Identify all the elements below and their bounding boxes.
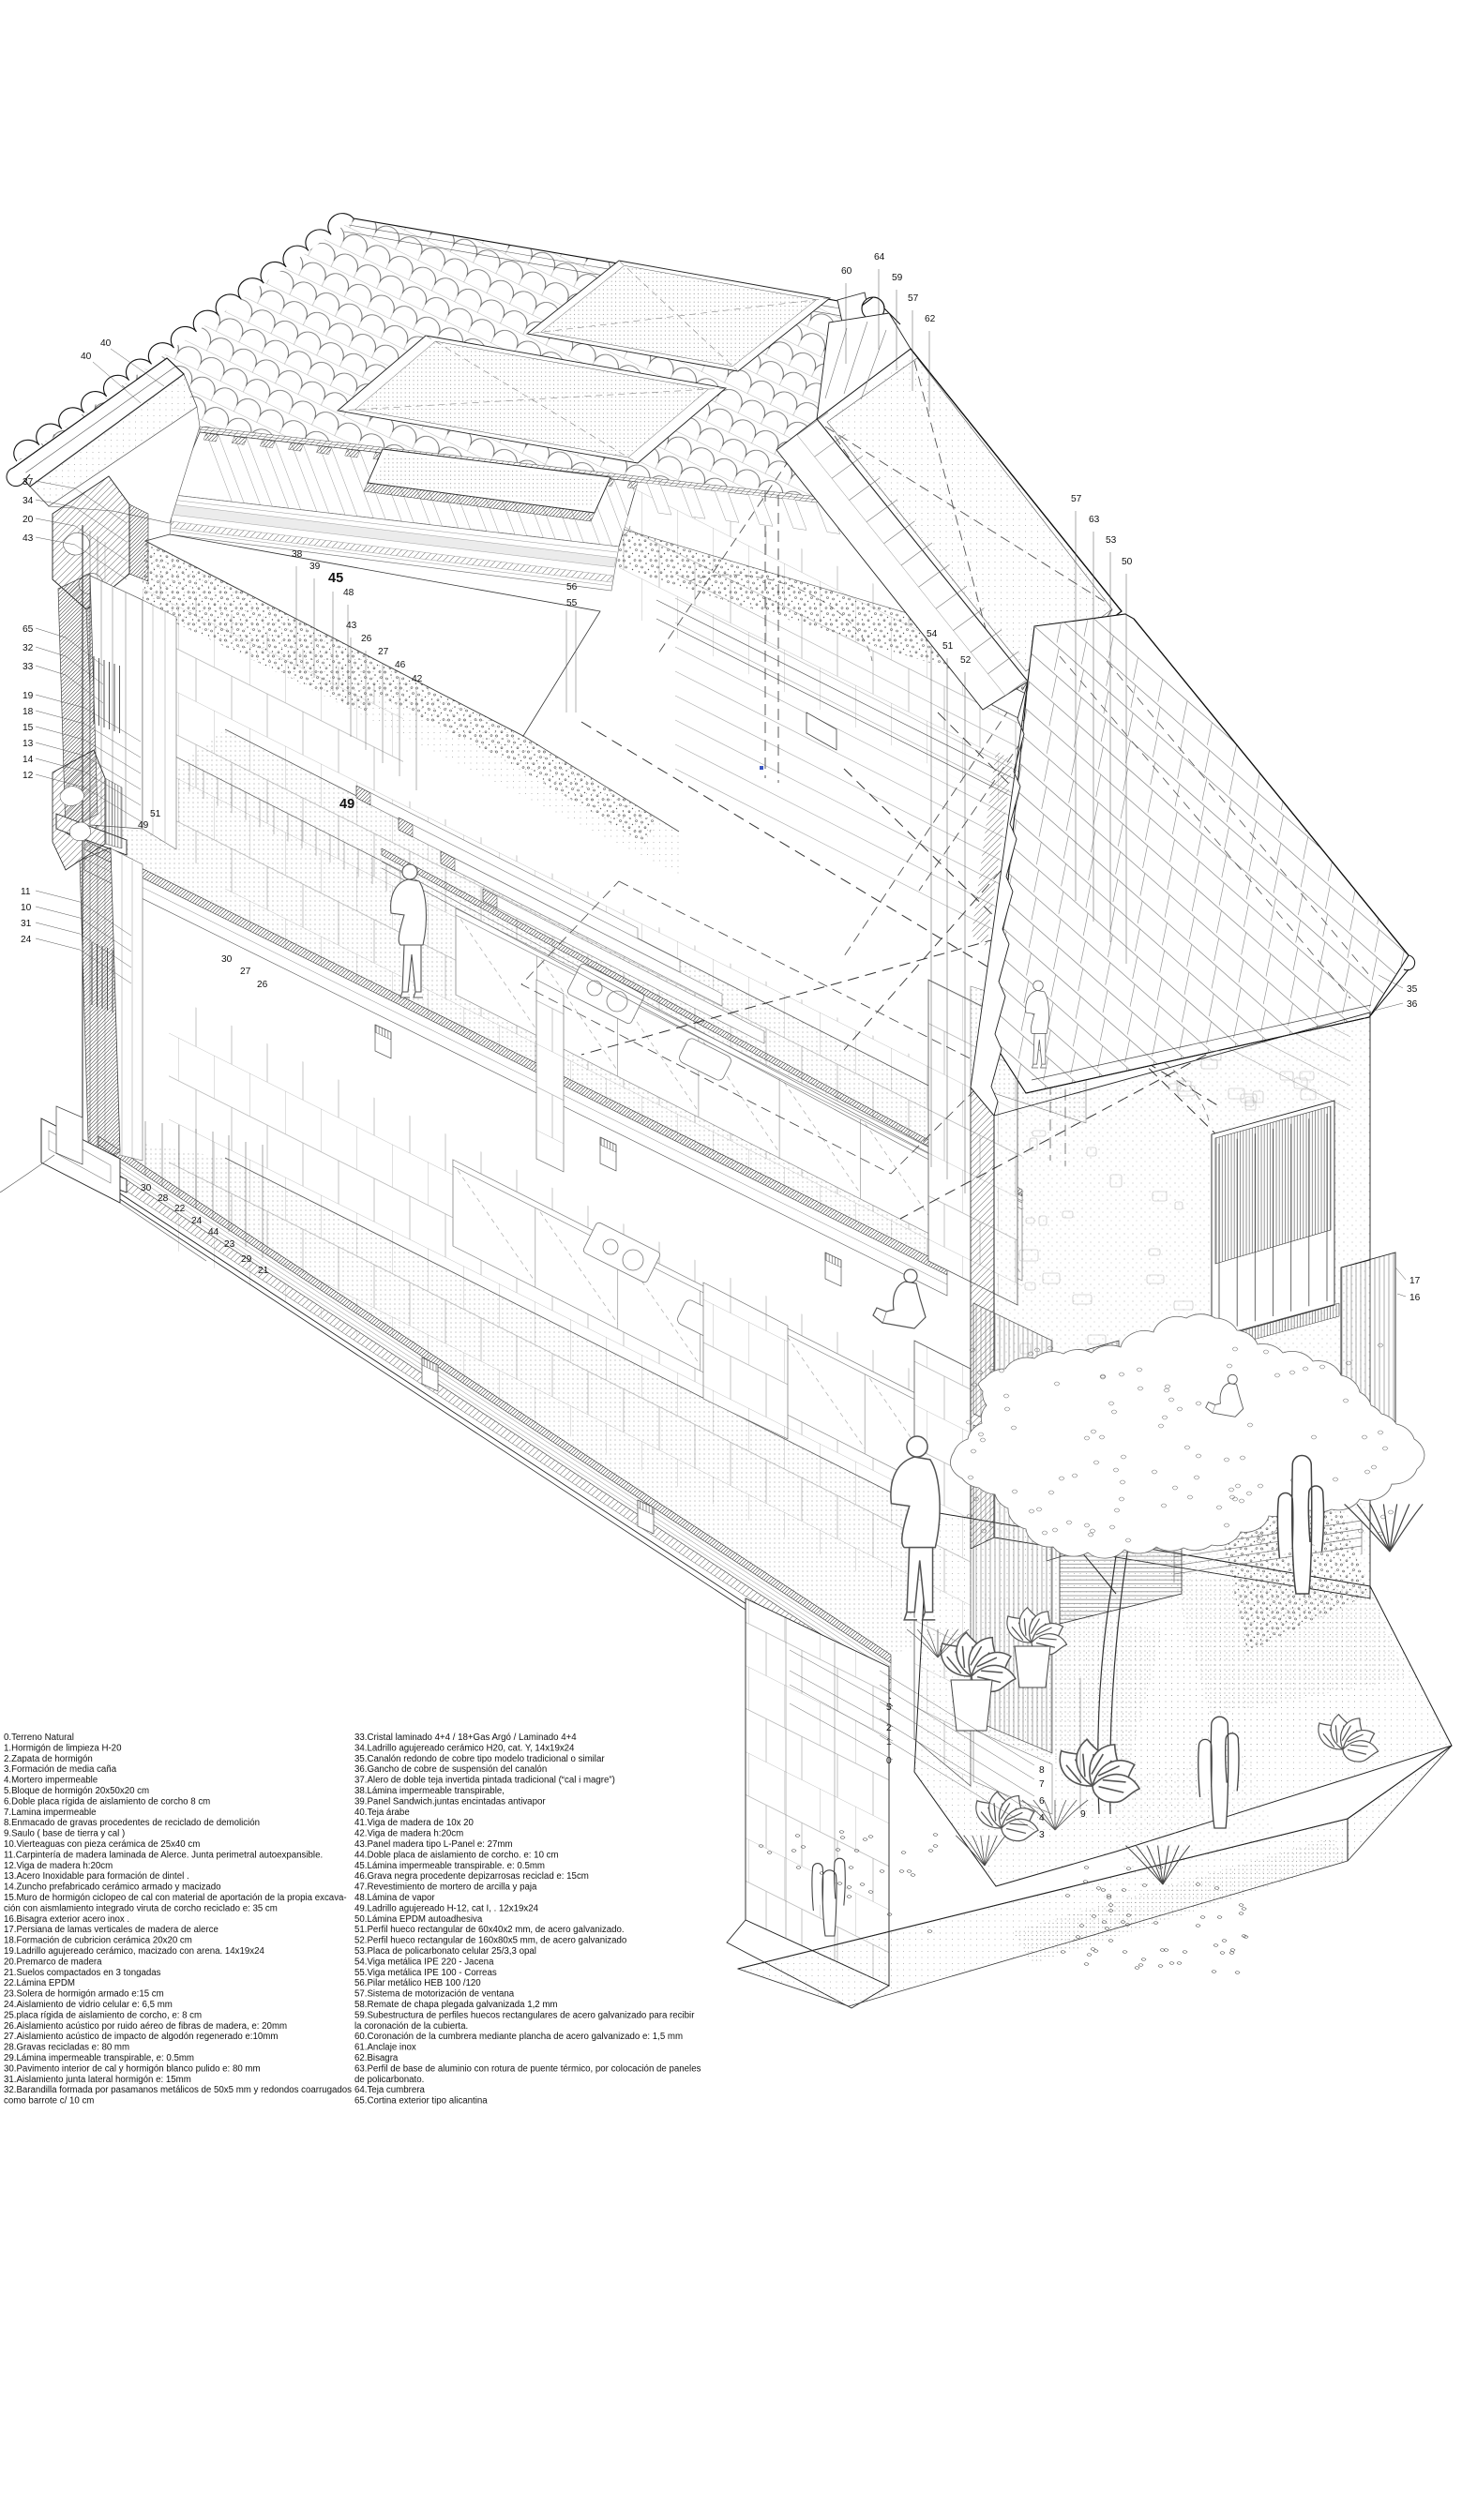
- svg-text:21.Suelos compactados en 3 ton: 21.Suelos compactados en 3 tongadas: [4, 1968, 161, 1978]
- svg-text:19.Ladrillo agujereado cerámic: 19.Ladrillo agujereado cerámico, macizad…: [4, 1946, 264, 1957]
- svg-text:64.Teja cumbrera: 64.Teja cumbrera: [354, 2085, 425, 2095]
- svg-text:37.Alero de doble teja inverti: 37.Alero de doble teja invertida pintada…: [354, 1776, 615, 1786]
- svg-text:41.Viga de madera de 10x 20: 41.Viga de madera de 10x 20: [354, 1818, 475, 1828]
- svg-text:56.Pilar metálico HEB 100 /120: 56.Pilar metálico HEB 100 /120: [354, 1978, 481, 1988]
- svg-text:29: 29: [241, 1254, 252, 1265]
- svg-text:27: 27: [240, 967, 251, 977]
- svg-text:49.Ladrillo agujereado H-12, c: 49.Ladrillo agujereado H-12, cat I, . 12…: [354, 1903, 539, 1913]
- svg-text:34: 34: [23, 496, 34, 506]
- svg-text:29.Lámina impermeable transpir: 29.Lámina impermeable transpirable, e: 0…: [4, 2053, 194, 2063]
- svg-text:40: 40: [100, 338, 112, 349]
- svg-text:30.Pavimento interior de cal y: 30.Pavimento interior de cal y hormigón …: [4, 2063, 261, 2074]
- svg-text:6.Doble placa rígida de aislam: 6.Doble placa rígida de aislamiento de c…: [4, 1796, 210, 1807]
- svg-text:13.Acero Inoxidable para form: 13.Acero Inoxidable para formación de di…: [4, 1871, 189, 1882]
- svg-text:12: 12: [23, 771, 34, 781]
- svg-text:45: 45: [328, 571, 343, 586]
- svg-text:36.Gancho de cobre de suspensi: 36.Gancho de cobre de suspensión del can…: [354, 1764, 547, 1775]
- svg-text:31.Aislamiento junta lateral h: 31.Aislamiento junta lateral hormigón e:…: [4, 2075, 191, 2085]
- svg-text:10.Vierteaguas con pieza cerám: 10.Vierteaguas con pieza cerámica de 25x…: [4, 1839, 200, 1850]
- svg-text:64: 64: [874, 252, 885, 262]
- svg-text:19: 19: [23, 691, 34, 701]
- svg-text:8.Enmacado de gravas procedent: 8.Enmacado de gravas procedentes de reci…: [4, 1818, 260, 1828]
- svg-text:59.Subestructura de perfiles h: 59.Subestructura de perfiles huecos rect…: [354, 2010, 695, 2020]
- svg-text:59: 59: [892, 273, 903, 283]
- svg-text:17: 17: [1409, 1276, 1421, 1286]
- svg-text:como barrote c/ 10 cm: como barrote c/ 10 cm: [4, 2096, 94, 2107]
- svg-text:11.Carpintería de madera lamin: 11.Carpintería de madera laminada de Ale…: [4, 1850, 323, 1860]
- svg-text:ción con aismlamiento integrad: ción con aismlamiento integrado viruta d…: [4, 1903, 278, 1913]
- svg-text:24.Aislamiento de vidrio celul: 24.Aislamiento de vidrio celular e: 6,5 …: [4, 2000, 173, 2010]
- svg-text:16: 16: [1409, 1293, 1421, 1303]
- svg-text:51: 51: [150, 809, 161, 819]
- svg-text:11: 11: [21, 887, 31, 897]
- svg-text:5.Bloque de hormigón 20x50x20: 5.Bloque de hormigón 20x50x20 cm: [4, 1786, 149, 1796]
- svg-text:9: 9: [1080, 1809, 1086, 1820]
- svg-text:33: 33: [23, 662, 34, 672]
- svg-text:15: 15: [23, 723, 34, 733]
- svg-text:23.Solera de hormigón armado e: 23.Solera de hormigón armado e:15 cm: [4, 1989, 164, 2000]
- svg-text:44.Doble placa de aislamiento: 44.Doble placa de aislamiento de corcho.…: [354, 1850, 559, 1860]
- svg-text:55: 55: [566, 598, 578, 608]
- svg-text:62.Bisagra: 62.Bisagra: [354, 2053, 399, 2063]
- svg-text:47.Revestimiento de mortero de: 47.Revestimiento de mortero de arcilla y…: [354, 1882, 537, 1893]
- svg-text:40.Teja árabe: 40.Teja árabe: [354, 1807, 410, 1818]
- svg-text:7.Lamina impermeable: 7.Lamina impermeable: [4, 1807, 97, 1818]
- svg-text:63.Perfil de base de aluminio: 63.Perfil de base de aluminio con rotura…: [354, 2063, 701, 2074]
- svg-text:65: 65: [23, 624, 34, 635]
- svg-text:60.Coronación de la cumbrera m: 60.Coronación de la cumbrera mediante pl…: [354, 2032, 683, 2042]
- svg-text:44: 44: [208, 1227, 219, 1237]
- svg-text:54.Viga metálica IPE 220 - Jac: 54.Viga metálica IPE 220 - Jacena: [354, 1957, 494, 1967]
- svg-text:24: 24: [191, 1216, 203, 1226]
- svg-text:13: 13: [23, 739, 34, 749]
- svg-text:65.Cortina exterior tipo alica: 65.Cortina exterior tipo alicantina: [354, 2096, 488, 2107]
- svg-text:51.Perfil hueco rectangular de: 51.Perfil hueco rectangular de 60x40x2 m…: [354, 1925, 625, 1935]
- svg-text:35: 35: [1407, 984, 1418, 995]
- svg-text:7: 7: [1039, 1779, 1045, 1790]
- svg-text:43: 43: [346, 621, 357, 631]
- svg-text:21: 21: [258, 1266, 269, 1276]
- svg-text:16.Bisagra exterior acero inox: 16.Bisagra exterior acero inox .: [4, 1914, 129, 1925]
- svg-text:38: 38: [292, 549, 303, 560]
- svg-text:9.Saulo ( base de tierra y cal: 9.Saulo ( base de tierra y cal ): [4, 1829, 125, 1839]
- svg-text:61.Anclaje inox: 61.Anclaje inox: [354, 2043, 416, 2053]
- svg-text:26: 26: [361, 634, 372, 644]
- svg-text:32: 32: [23, 643, 34, 653]
- svg-text:62: 62: [925, 314, 936, 324]
- svg-text:34.Ladrillo agujereado cerámic: 34.Ladrillo agujereado cerámico H20, cat…: [354, 1743, 575, 1753]
- svg-text:27.Aislamiento acústico de imp: 27.Aislamiento acústico de impacto de al…: [4, 2032, 278, 2042]
- svg-text:55.Viga metálica IPE 100 - Cor: 55.Viga metálica IPE 100 - Correas: [354, 1968, 497, 1978]
- svg-text:57: 57: [1071, 494, 1082, 504]
- svg-text:3: 3: [1039, 1830, 1045, 1840]
- svg-text:18.Formación de cubricion cer: 18.Formación de cubricion cerámica 20x20…: [4, 1936, 192, 1946]
- svg-text:60: 60: [841, 266, 852, 277]
- svg-text:12.Viga de madera h:20cm: 12.Viga de madera h:20cm: [4, 1861, 113, 1871]
- svg-text:la coronación de la cubierta.: la coronación de la cubierta.: [354, 2021, 468, 2032]
- svg-text:14: 14: [23, 755, 34, 765]
- svg-text:57: 57: [908, 293, 919, 304]
- svg-text:52.Perfil hueco rectangular de: 52.Perfil hueco rectangular de 160x80x5 …: [354, 1936, 626, 1946]
- svg-text:31: 31: [21, 919, 32, 929]
- svg-text:35.Canalón redondo de cobre ti: 35.Canalón redondo de cobre tipo modelo …: [354, 1754, 605, 1764]
- svg-text:42.Viga de madera h:20cm: 42.Viga de madera h:20cm: [354, 1829, 463, 1839]
- svg-text:38.Lámina impermeable transpir: 38.Lámina impermeable transpirable,: [354, 1786, 505, 1796]
- svg-text:1.Hormigón de limpieza H-20: 1.Hormigón de limpieza H-20: [4, 1743, 122, 1753]
- svg-text:18: 18: [23, 707, 34, 717]
- svg-text:15.Muro de hormigón ciclopeo d: 15.Muro de hormigón ciclopeo de cal con …: [4, 1893, 347, 1903]
- svg-text:46: 46: [395, 660, 406, 670]
- svg-text:14.Zuncho prefabricado cerámic: 14.Zuncho prefabricado cerámico armado y…: [4, 1882, 221, 1893]
- svg-text:26.Aislamiento acústico por ru: 26.Aislamiento acústico por ruido aéreo …: [4, 2021, 287, 2032]
- svg-text:54: 54: [927, 629, 938, 639]
- svg-text:33.Cristal laminado 4+4 / 18+G: 33.Cristal laminado 4+4 / 18+Gas Argó / …: [354, 1732, 577, 1743]
- svg-text:40: 40: [81, 352, 92, 362]
- svg-text:4: 4: [1039, 1813, 1045, 1823]
- svg-text:22.Lámina EPDM: 22.Lámina EPDM: [4, 1978, 75, 1988]
- svg-text:53.Placa de policarbonato celu: 53.Placa de policarbonato celular 25/3,3…: [354, 1946, 536, 1957]
- svg-text:63: 63: [1089, 515, 1100, 525]
- svg-text:52: 52: [960, 655, 972, 666]
- svg-text:53: 53: [1106, 535, 1117, 546]
- svg-text:58.Remate de chapa plegada gal: 58.Remate de chapa plegada galvanizada 1…: [354, 2000, 558, 2010]
- svg-text:39: 39: [309, 562, 321, 572]
- svg-text:50.Lámina EPDM autoadhesiva: 50.Lámina EPDM autoadhesiva: [354, 1914, 483, 1925]
- svg-text:48: 48: [343, 588, 354, 598]
- svg-text:10: 10: [21, 903, 32, 913]
- svg-text:27: 27: [378, 647, 389, 657]
- svg-text:43: 43: [23, 533, 34, 544]
- svg-text:51: 51: [942, 641, 954, 652]
- svg-text:23: 23: [224, 1239, 235, 1250]
- svg-text:30: 30: [141, 1183, 152, 1193]
- svg-text:de policarbonato.: de policarbonato.: [354, 2075, 424, 2085]
- svg-text:39.Panel Sandwich.juntas encin: 39.Panel Sandwich.juntas encintadas anti…: [354, 1796, 546, 1807]
- svg-text:20.Premarco de madera: 20.Premarco de madera: [4, 1957, 102, 1967]
- svg-text:43.Panel madera tipo L-Panel e: 43.Panel madera tipo L-Panel e: 27mm: [354, 1839, 513, 1850]
- svg-text:56: 56: [566, 582, 578, 592]
- svg-text:32.Barandilla formada por pasa: 32.Barandilla formada por pasamanos metá…: [4, 2085, 352, 2095]
- svg-text:20: 20: [23, 515, 34, 525]
- svg-text:37: 37: [23, 477, 34, 487]
- svg-text:50: 50: [1122, 557, 1133, 567]
- svg-text:28.Gravas recicladas e: 80 mm: 28.Gravas recicladas e: 80 mm: [4, 2043, 129, 2053]
- svg-text:17.Persiana de lamas verticale: 17.Persiana de lamas verticales de mader…: [4, 1925, 219, 1935]
- svg-text:2.Zapata de hormigón: 2.Zapata de hormigón: [4, 1754, 93, 1764]
- svg-text:36: 36: [1407, 999, 1418, 1010]
- svg-text:4.Mortero impermeable: 4.Mortero impermeable: [4, 1776, 98, 1786]
- svg-text:26: 26: [257, 980, 268, 990]
- svg-text:57.Sistema de motorización de: 57.Sistema de motorización de ventana: [354, 1989, 515, 2000]
- svg-text:0.Terreno Natural: 0.Terreno Natural: [4, 1732, 74, 1743]
- svg-text:48.Lámina de vapor: 48.Lámina de vapor: [354, 1893, 435, 1903]
- svg-text:24: 24: [21, 935, 32, 945]
- svg-text:8: 8: [1039, 1765, 1045, 1776]
- svg-text:3.Formación de media caña: 3.Formación de media caña: [4, 1764, 117, 1775]
- svg-text:6: 6: [1039, 1796, 1045, 1807]
- svg-text:22: 22: [174, 1204, 186, 1214]
- svg-text:46.Grava negra procedente dep: 46.Grava negra procedente depizarrosas r…: [354, 1871, 589, 1882]
- svg-text:42: 42: [412, 674, 423, 684]
- svg-text:49: 49: [339, 797, 354, 812]
- svg-text:45.Lámina impermeable transpir: 45.Lámina impermeable transpirable. e: 0…: [354, 1861, 545, 1871]
- svg-text:28: 28: [158, 1193, 169, 1204]
- svg-text:30: 30: [221, 954, 233, 965]
- svg-text:49: 49: [138, 820, 149, 831]
- svg-text:25.placa rígida de aislamiento: 25.placa rígida de aislamiento de corcho…: [4, 2010, 202, 2020]
